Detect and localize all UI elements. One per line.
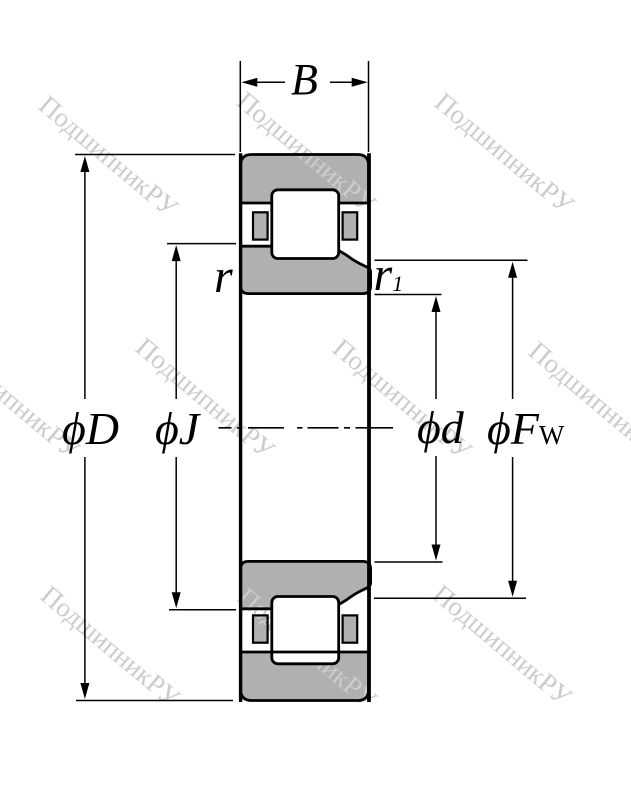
svg-text:ϕd: ϕd: [417, 402, 465, 453]
svg-text:B: B: [291, 55, 318, 104]
svg-text:ϕD: ϕD: [62, 403, 119, 454]
svg-text:r: r: [214, 250, 233, 303]
svg-text:ϕJ: ϕJ: [155, 403, 202, 454]
